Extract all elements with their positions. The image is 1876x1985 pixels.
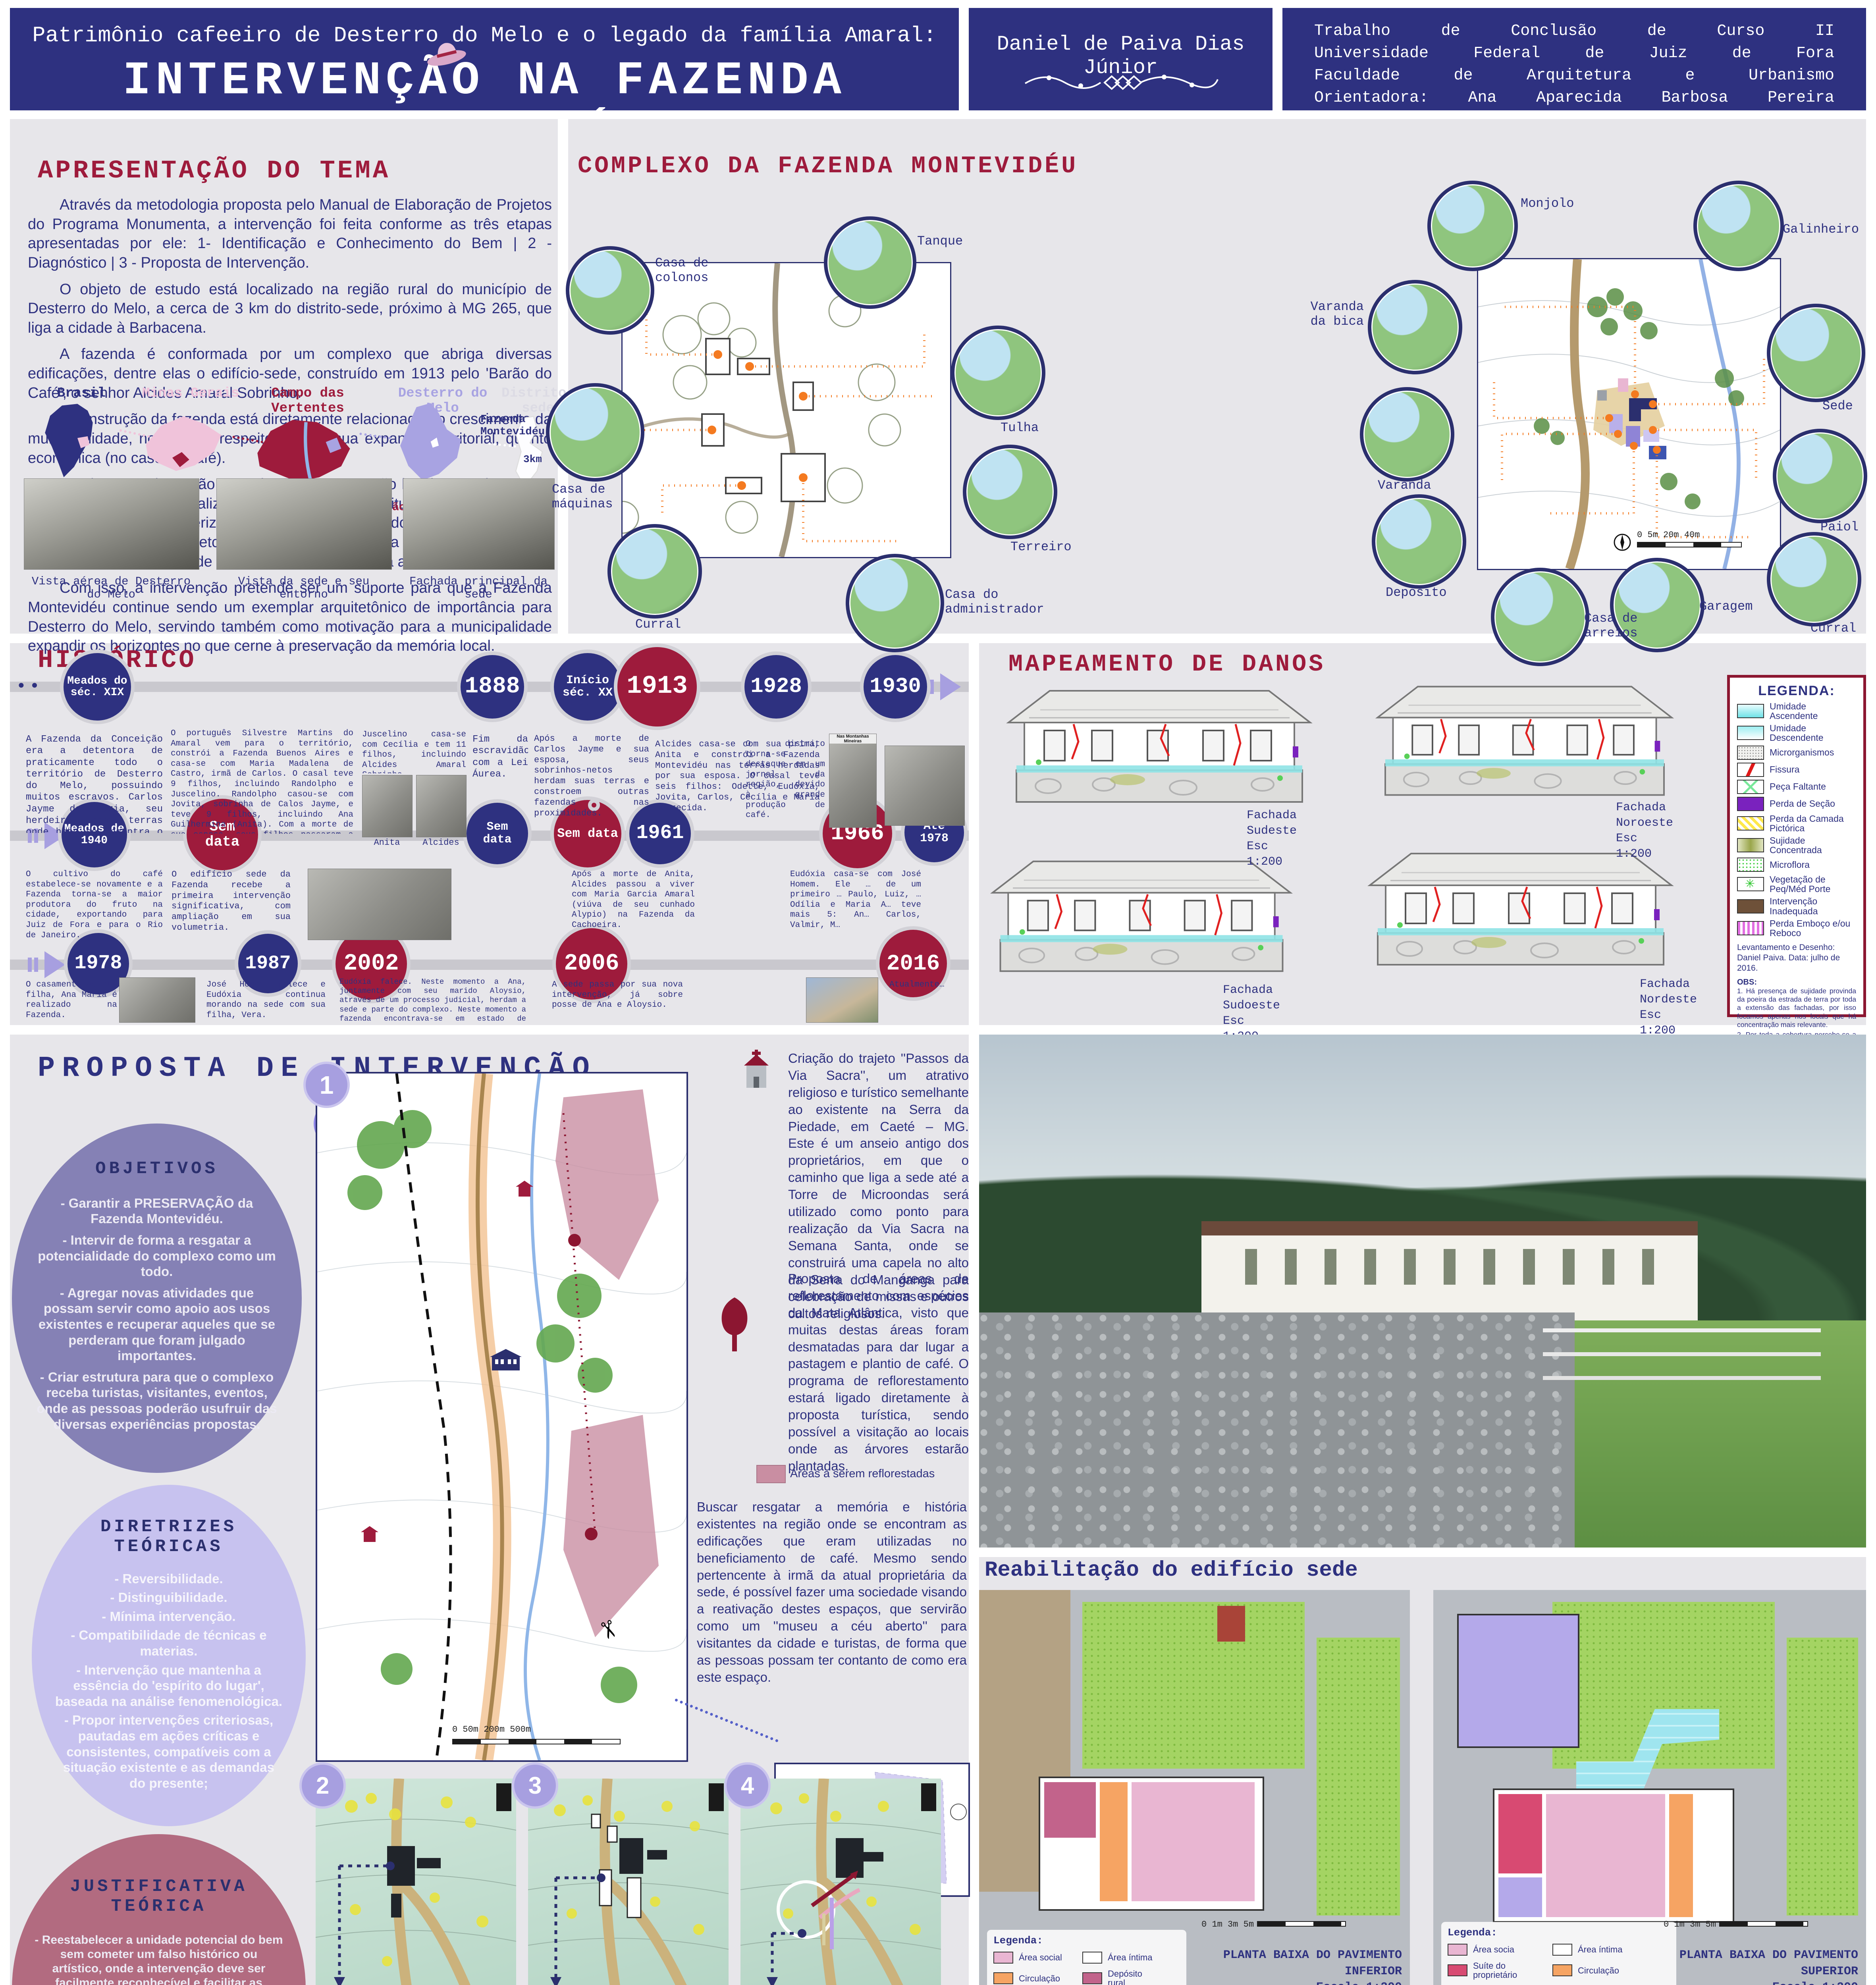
complexo-callout-label: Varanda da bica [1292,300,1364,329]
timeline-event-circle: Início séc. XX [554,653,621,721]
service-wing [1457,1614,1579,1748]
objetivo-item: - Agregar novas atividades que possam se… [34,1285,280,1364]
legend-swatch [1737,746,1764,760]
timeline-event-circle: 1930 [864,655,927,719]
room-suite [1498,1794,1542,1873]
poster-root: { "header":{ "title_small":"Patrimônio c… [0,0,1876,1985]
plan-inferior-label: PLANTA BAIXA DO PAVIMENTO INFERIOR Escal… [1195,1947,1402,1985]
timeline-event-text: Eudóxia casa-se com José Homem. Ele … de… [790,869,921,939]
section-title-apresentacao: APRESENTAÇÃO DO TEMA [38,157,390,185]
legend-label: Circulação [1019,1974,1060,1983]
render-stone-plaza [979,1312,1575,1548]
plan-label: PLANTA BAIXA DO PAVIMENTO SUPERIOR [1656,1947,1858,1979]
timeline-event-text: O edifício sede da Fazenda recebe a prim… [172,869,291,939]
complexo-photo-callout [1767,304,1865,402]
photo-fachada-principal [403,478,555,570]
building-footprint [1493,1788,1734,1923]
facade-noroeste-drawing [1370,679,1679,803]
plan-legend-item: Área social [993,1952,1073,1964]
map-brasil [28,397,127,482]
legend-swatch [1082,1972,1102,1984]
timeline-bar-3 [10,960,969,970]
timeline-event-text: Juscelino casa-se com Cecília e tem 11 f… [362,730,466,773]
room-circulacao [1100,1782,1128,1901]
room-intima [1044,1842,1096,1901]
map-region-label: Minas Gerais [139,386,242,401]
timeline-event-circle: 1888 [461,655,524,719]
complexo-callout-label: Tanque [917,234,997,249]
legend-swatch [993,1952,1013,1964]
complexo-callout-label: Tulha [1001,421,1068,436]
complexo-photo-callout [566,246,654,335]
proposal-model-4 [740,1779,941,1985]
plan-legend-item: Depósito rural [1082,1969,1162,1985]
timeline-event-circle: 1913 [617,647,697,727]
complexo-photo-callout [963,445,1057,539]
legend-swatch [1737,838,1764,852]
course-line-2: Universidade Federal de Juiz de Fora [1314,44,1834,62]
course-line-3: Faculdade de Arquitetura e Urbanismo [1314,67,1834,85]
divider [969,643,979,1025]
plan-legend-items: Área socialÁrea íntimaCirculaçãoDepósito… [993,1949,1180,1985]
header-author-box: Daniel de Paiva Dias Júnior [969,8,1273,110]
legend-swatch [1448,1964,1467,1976]
complexo-photo-callout [1360,387,1454,482]
complexo-callout-label: Casa do administrador [945,588,1056,617]
complexo-photo-callout [1372,494,1466,589]
danos-legend-credit: Levantamento e Desenho: Daniel Paiva. Da… [1737,942,1856,974]
plan-label: PLANTA BAIXA DO PAVIMENTO INFERIOR [1195,1947,1402,1979]
complexo-photo-callout [846,554,944,652]
section-title-complexo: COMPLEXO DA FAZENDA MONTEVIDÉU [578,153,1078,180]
legend-label: Perda de Seção [1770,799,1835,808]
photo-caption: Fachada principal da sede [403,575,554,601]
complexo-callout-label: Curral [635,617,703,632]
plan-legend-title: Legenda: [1448,1927,1670,1939]
complexo-callout-label: Terreiro [1010,540,1094,555]
facade-label: Fachada Nordeste Esc 1:200 [1640,977,1697,1039]
legend-label: Área íntima [1578,1945,1623,1954]
objetivos-title: OBJETIVOS [34,1159,280,1179]
diretrizes-title: DIRETRIZES TEÓRICAS [54,1517,284,1557]
danos-legend-items: Umidade Ascendente Umidade Descendente M… [1737,701,1856,938]
divider [979,1548,1866,1557]
complexo-callout-label: Depósito [1386,586,1465,600]
garden [1317,1638,1400,1916]
timeline-event-circle: 1928 [744,655,808,719]
complexo-callout-label: Casa de máquinas [552,482,651,512]
territory-map: ✂ [317,1073,686,1760]
danos-legend-item: Sujidade Concentrada [1737,836,1856,855]
complexo-photo-callout [546,383,644,482]
danos-legend-title: LEGENDA: [1737,683,1856,699]
legend-swatch [993,1972,1013,1984]
map1-scale-label: 0 50m 200m 500m [452,1725,531,1734]
timeline-event-text: Atualmente… [889,980,961,1023]
legend-swatch [1552,1944,1572,1956]
danos-legend-item: Perda da Camada Pictórica [1737,814,1856,833]
timeline-event-text: O cultivo do café estabelece-se novament… [26,869,163,939]
plan-legend-item: Área socia [1448,1944,1543,1956]
legend-swatch [1737,877,1764,891]
legend-swatch [1737,763,1764,777]
chapel-icon [738,1048,774,1092]
section-title-danos: MAPEAMENTO DE DANOS [1008,651,1325,678]
justificativa-title: JUSTIFICATIVA TEÓRICA [34,1877,284,1916]
reflorest-swatch [756,1465,786,1483]
plan-legend-item: Circulação [993,1969,1073,1985]
para-museu: Buscar resgatar a memória e história exi… [697,1499,967,1686]
objetivos-ellipse: OBJETIVOS - Garantir a PRESERVAÇÃO da Fa… [12,1124,302,1473]
portrait-caption-alcides: Alcides [416,838,466,848]
diretriz-item: - Propor intervenções criteriosas, pauta… [54,1712,284,1791]
timeline-start-dots: ● ● [18,680,38,692]
map-annotation-distance: 3km [523,453,542,465]
plan-pavimento-superior: Legenda: Área sociaÁrea íntimaSuíte do p… [1433,1590,1866,1985]
justificativa-item: - Reestabelecer a unidade potencial do b… [34,1933,284,1985]
facade-nordeste-drawing [1362,846,1679,973]
danos-legend-item: Umidade Ascendente [1737,701,1856,721]
danos-legend-item: Perda de Seção [1737,797,1856,811]
divider [558,119,568,635]
plan-scale-bar-label: 0 1m 3m 5m [1664,1919,1716,1929]
objetivo-item: - Intervir de forma a resgatar a potenci… [34,1232,280,1280]
proposta-map-territorio: ✂ 0 50m 200m 500m [316,1072,688,1762]
stair-red [1217,1606,1245,1642]
legend-label: Fissura [1770,765,1799,774]
plan-inferior-legend: Legenda: Área socialÁrea íntimaCirculaçã… [987,1930,1186,1985]
legend-label: Área socia [1473,1945,1514,1954]
timeline-event-text: José Homem falece e Eudóxia continua mor… [206,980,326,1023]
diretriz-item: - Intervenção que mantenha a essência do… [54,1662,284,1709]
photo-igreja-2016 [806,977,878,1023]
facade-sudoeste-drawing [985,854,1298,979]
legend-swatch [1737,816,1764,831]
legend-label: Perda Emboço e/ou Reboco [1770,919,1856,938]
proposal-step-3: 3 [514,1765,556,1806]
garden [1082,1602,1305,1769]
danos-legend-item: Perda Emboço e/ou Reboco [1737,919,1856,938]
complexo-photo-callout [1368,280,1462,374]
proposal-step-1: 1 [306,1064,347,1106]
timeline-event-text: A sede passa por sua nova intervenção, j… [552,980,683,1023]
photo-casamento-1978 [119,977,195,1023]
cowboy-hat-icon [425,39,469,67]
complexo-callout-label: Curral [1810,621,1870,636]
danos-legend-item: Fissura [1737,763,1856,777]
floral-ornament-icon [1021,67,1220,95]
legend-label: Sujidade Concentrada [1770,836,1856,855]
room-servico [1498,1877,1542,1917]
diretriz-item: - Distinguibilidade. [54,1590,284,1605]
divider [10,1025,1866,1035]
facade-scale: Esc 1:200 [1247,839,1297,870]
portrait-caption-anita: Anita [362,838,412,848]
room-intima [1697,1794,1729,1917]
complexo-callout-label: Monjolo [1521,197,1600,211]
complexo-callout-label: Garagem [1699,599,1779,614]
plan-legend-item: Área íntima [1082,1952,1162,1964]
facade-label: Fachada Noroeste Esc 1:200 [1616,800,1673,862]
reforest-tree-icon [711,1294,758,1354]
room-social [1546,1794,1665,1917]
proposal-model-3 [528,1779,729,1985]
reflorest-caption: Áreas a serem reflorestadas [790,1467,969,1480]
render-lawn [1535,1320,1866,1548]
room-deposito [1044,1782,1096,1838]
legend-swatch [1552,1964,1572,1976]
timeline-event-text: Após a morte de Anita, Alcides passou a … [572,869,695,939]
plan-legend-item: Área íntima [1552,1944,1648,1956]
complexo-callout-label: Varanda [1378,478,1453,493]
timeline-event-text: O casamento de sua filha, Ana Maria é re… [26,980,117,1023]
photo-caption: Vista da sede e seu entorno [216,575,391,601]
render-fence [1543,1328,1821,1332]
danos-legend-item: Microrganismos [1737,746,1856,760]
building-footprint [1039,1777,1264,1911]
legend-label: Microflora [1770,860,1810,869]
complexo-photo-callout [951,326,1045,420]
plan-scale: Escala 1:200 [1656,1979,1858,1985]
compass-icon [1613,533,1631,551]
sede-marker-icon [488,1347,524,1375]
facade-label: Fachada Sudeste Esc 1:200 [1247,808,1297,870]
complexo-photo-callout [1693,181,1784,271]
plan-scale-bar [1257,1921,1346,1927]
complexo-photo-callout [1427,181,1518,271]
facade-scale: Esc 1:200 [1616,831,1673,862]
complexo-callout-label: Casa de arreios [1584,611,1675,641]
complexo-photo-callout [1767,532,1861,626]
newspaper-headline: Nas Montanhas Mineiras [829,734,876,744]
legend-label: Circulação [1578,1966,1619,1975]
photo-newspaper-1928: Nas Montanhas Mineiras [829,734,877,828]
objetivos-items: - Garantir a PRESERVAÇÃO da Fazenda Mont… [34,1190,280,1438]
proposal-step-2: 2 [302,1765,343,1806]
plan-legend-items: Área sociaÁrea íntimaSuíte do proprietár… [1448,1941,1670,1985]
plan-legend-title: Legenda: [993,1935,1180,1946]
plan-scale: Escala 1:200 [1195,1979,1402,1985]
complexo-photo-callout [824,216,916,309]
diretriz-item: - Compatibilidade de técnicas e materias… [54,1627,284,1659]
render-fazenda-proposta [979,1035,1866,1548]
legend-label: Perda da Camada Pictórica [1770,814,1856,833]
legend-label: Intervenção Inadequada [1770,896,1856,915]
diretriz-item: - Reversibilidade. [54,1571,284,1587]
timeline-arrow [44,951,65,978]
legend-label: Depósito rural [1108,1969,1162,1985]
map-desterro-do-melo [383,399,490,490]
legend-swatch [1737,704,1764,718]
proposal-model-2 [316,1779,516,1985]
legend-label: Vegetação de Peq/Méd Porte [1770,875,1856,894]
proposal-step-4: 4 [727,1765,768,1806]
danos-legend-item: Umidade Descendente [1737,723,1856,742]
complexo-photo-callout [1491,568,1589,666]
legend-label: Umidade Ascendente [1770,701,1856,721]
para-reflorestamento: Proposta de áreas de reflorestamento com… [788,1270,969,1475]
diretriz-item: - Mínima intervenção. [54,1609,284,1625]
legend-label: Microrganismos [1770,748,1834,757]
danos-legend-item: Intervenção Inadequada [1737,896,1856,915]
facade-scale: Esc 1:200 [1640,1008,1697,1039]
facade-name: Fachada Noroeste [1616,800,1673,831]
timeline-event-text: Após a morte de Carlos Jayme e sua espos… [534,734,649,825]
diretrizes-ellipse: DIRETRIZES TEÓRICAS - Reversibilidade.- … [32,1485,306,1826]
photo-horsemen-1930 [885,746,965,826]
room-social [1132,1782,1255,1901]
facade-name: Fachada Nordeste [1640,977,1697,1008]
legend-label: Área social [1019,1953,1062,1962]
legend-swatch [1082,1952,1102,1964]
danos-legend-item: Microflora [1737,858,1856,872]
map-annotation-fazenda: Fazenda Montevidéu [480,414,552,438]
legend-label: Umidade Descendente [1770,723,1856,742]
danos-obs-title: OBS: [1737,978,1856,987]
plan-scale-bar [1719,1921,1808,1927]
danos-legend-item: Peça Faltante [1737,780,1856,794]
danos-legend-item: Vegetação de Peq/Méd Porte [1737,875,1856,894]
render-windows [1217,1249,1682,1285]
timeline-event-text: Fim da escravidão com a Lei Áurea. [472,734,528,813]
plan-legend-item: Suíte do proprietário [1448,1961,1543,1979]
legend-swatch [1737,780,1764,794]
plan-legend-item: Circulação [1552,1961,1648,1979]
complexo-photo-callout [1773,429,1867,523]
course-line-4: Orientadora: Ana Aparecida Barbosa Perei… [1314,89,1834,107]
complexo-callout-label: Paiol [1820,520,1868,535]
complexo-scale-label: 0 5m 20m 40m [1637,530,1700,540]
site-sketch-left [623,263,950,557]
header-course-box: Trabalho de Conclusão de Curso II Univer… [1282,8,1866,110]
complexo-callout-label: Sede [1822,399,1870,414]
poster-subtitle: Patrimônio cafeeiro de Desterro do Melo … [10,23,959,48]
plan-superior-legend: Legenda: Área sociaÁrea íntimaSuíte do p… [1441,1922,1676,1985]
room-circulacao [1669,1794,1693,1917]
objetivo-item: - Garantir a PRESERVAÇÃO da Fazenda Mont… [34,1195,280,1227]
danos-legend-box: LEGENDA: Umidade Ascendente Umidade Desc… [1727,675,1866,1017]
legend-swatch [1448,1944,1467,1956]
legend-swatch [1737,899,1764,913]
timeline-event-circle: Meados do séc. XIX [64,653,131,721]
apresentacao-paragraph: O objeto de estudo está localizado na re… [28,280,552,338]
section-title-reabilitacao: Reabilitação do edifício sede [985,1558,1358,1582]
legend-swatch [1737,858,1764,872]
course-line-1: Trabalho de Conclusão de Curso II [1314,22,1834,40]
objetivo-item: - Criar estrutura para que o complexo re… [34,1369,280,1432]
header-title-box: Patrimônio cafeeiro de Desterro do Melo … [10,8,959,110]
timeline-event-text: O português Silvestre Martins do Amaral … [171,728,353,834]
complexo-callout-label: Galinheiro [1783,222,1870,237]
justificativa-items: - Reestabelecer a unidade potencial do b… [34,1927,284,1985]
timeline-event-text: Eudóxia falece. Neste momento a Ana, jun… [339,977,526,1024]
plan-scale-bar-label: 0 1m 3m 5m [1201,1919,1254,1929]
complexo-callout-label: Casa de colonos [655,256,746,285]
legend-label: Peça Faltante [1770,782,1826,791]
plan-superior-label: PLANTA BAIXA DO PAVIMENTO SUPERIOR Escal… [1656,1947,1858,1985]
photo-anita [362,775,413,837]
complexo-scale-bar [1637,542,1756,547]
facade-sudeste-drawing [1001,683,1318,810]
legend-swatch [1737,921,1764,935]
legend-label: Suíte do proprietário [1473,1961,1543,1979]
timeline-arrow [940,673,961,700]
photo-vista-aerea [24,478,199,570]
timeline-event-text: O distrito torna-se destaque em um jorna… [746,739,825,829]
photo-sede-antiga [308,869,451,940]
apresentacao-paragraph: Através da metodologia proposta pelo Man… [28,195,552,273]
photo-vista-sede [216,478,392,570]
map-minas-gerais [131,405,236,480]
legend-label: Área íntima [1108,1953,1153,1962]
photo-alcides [416,775,467,837]
garden [1787,1638,1858,1916]
photo-caption: Vista aérea de Desterro do Melo [24,575,199,601]
complexo-site-plan-left [621,262,951,558]
diretrizes-items: - Reversibilidade.- Distinguibilidade.- … [54,1568,284,1794]
facade-name: Fachada Sudeste [1247,808,1297,839]
map1-scale-bar [452,1739,621,1744]
site-plan-right [1478,259,1780,569]
legend-swatch [1737,797,1764,811]
complexo-photo-callout [607,524,702,619]
plan-pavimento-inferior: Legenda: Área socialÁrea íntimaCirculaçã… [979,1590,1410,1985]
map-campo-das-vertentes [246,409,361,488]
divider [969,1035,979,1985]
timeline-event-text: A Fazenda da Conceição era a detentora d… [26,734,163,833]
complexo-site-plan-right: 0 5m 20m 40m [1477,258,1781,570]
legend-swatch [1737,726,1764,740]
danos-obs-item: 1. Há presença de sujidade provinda da p… [1737,987,1856,1029]
facade-name: Fachada Sudoeste [1223,983,1280,1014]
